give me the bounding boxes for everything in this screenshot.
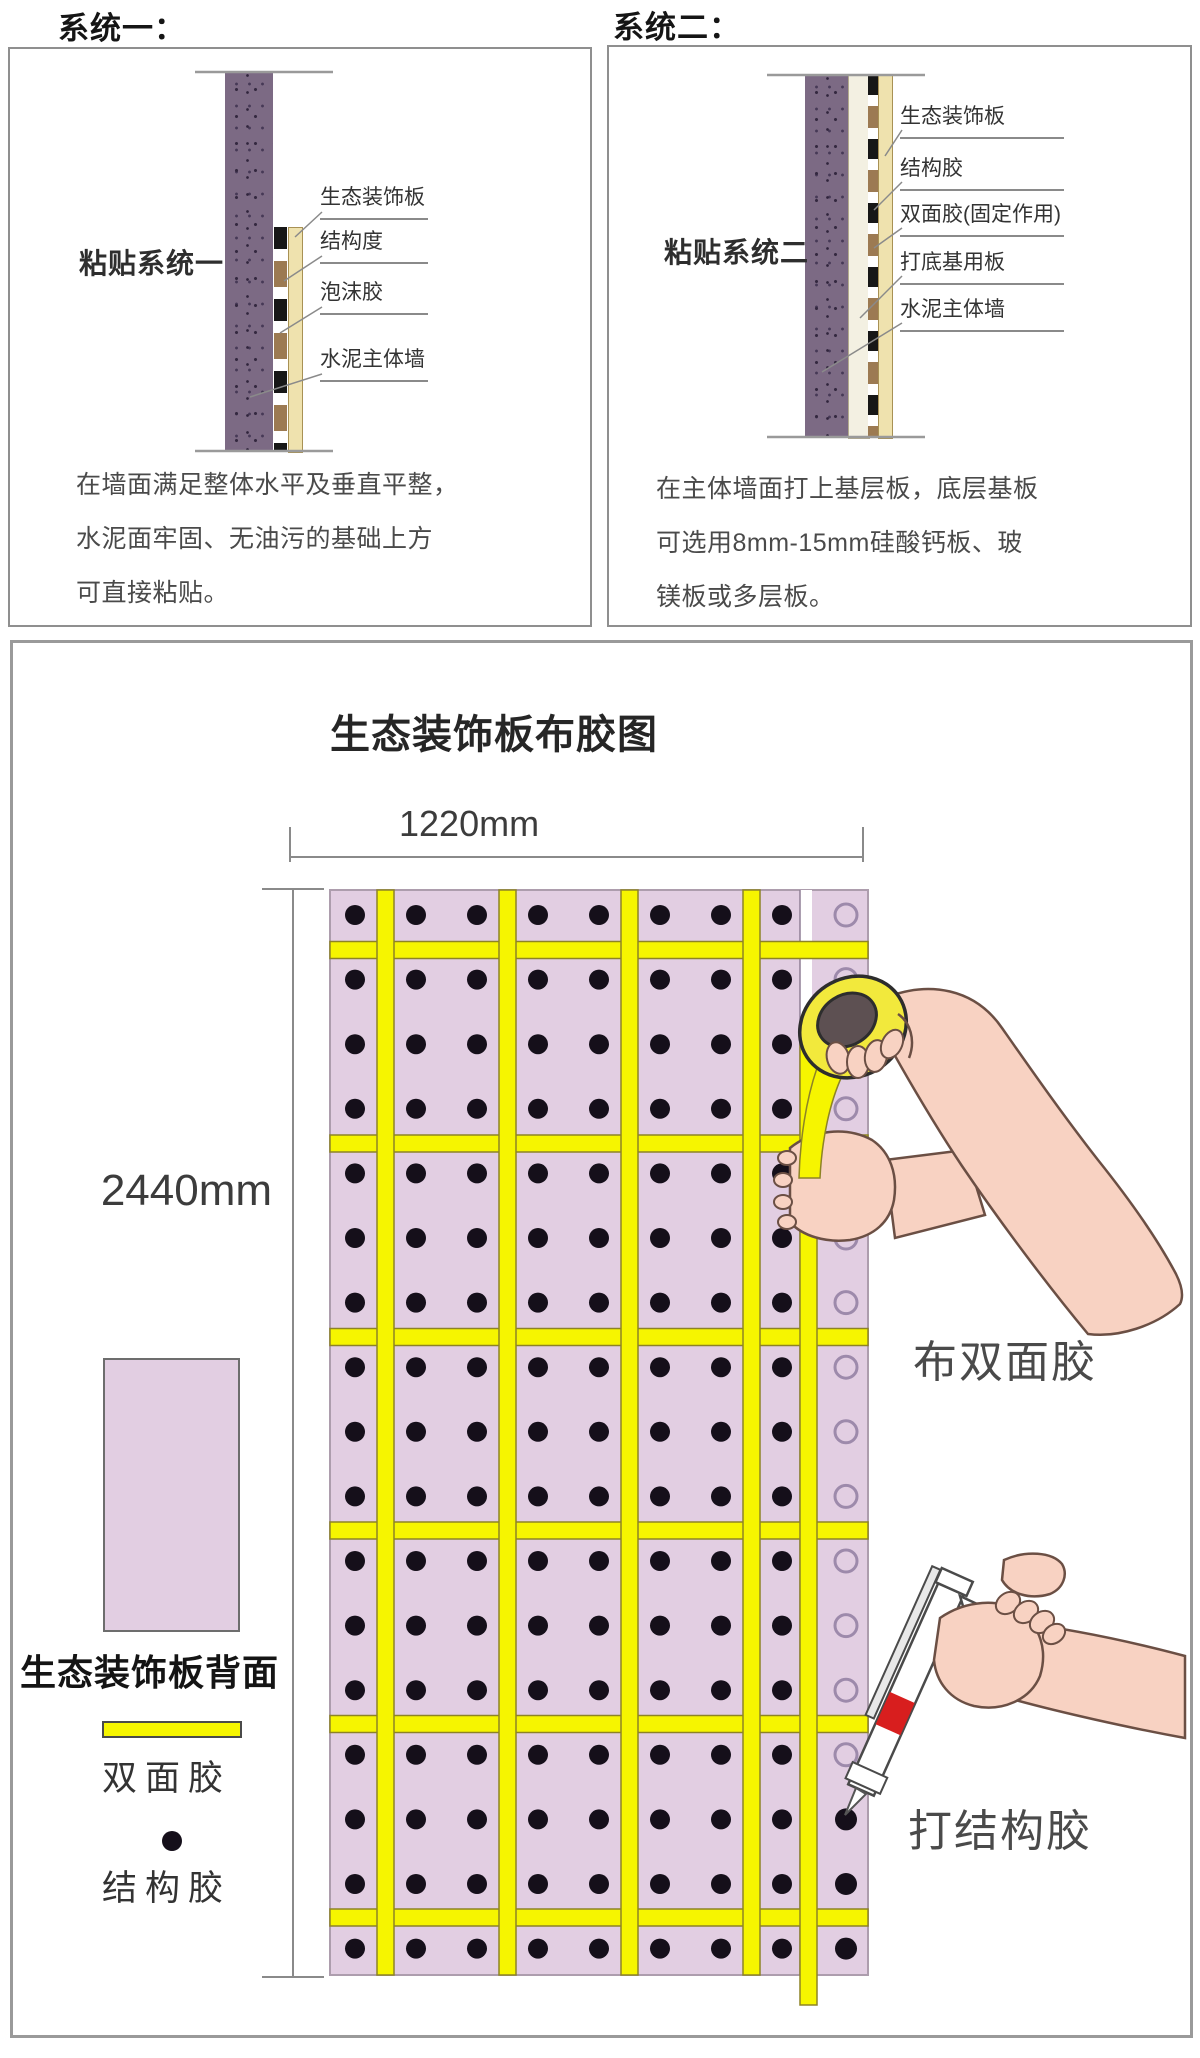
legend-panel-swatch (103, 1358, 240, 1632)
system2-base-board (848, 75, 870, 439)
system1-cement-wall (225, 72, 273, 451)
system2-title: 系统二： (613, 2, 741, 47)
system2-deco-board (878, 75, 893, 439)
system2-cement-wall (805, 75, 848, 437)
system1-layer-label-foam-glue: 泡沫胶 (320, 276, 428, 315)
system1-layer-label-cement-wall: 水泥主体墙 (320, 343, 428, 382)
system1-layer-label-structural: 结构度 (320, 225, 428, 264)
system1-description-line1: 在墙面满足整体水平及垂直平整， (76, 458, 459, 512)
system1-glue-column (274, 227, 287, 451)
legend-glue-dot-swatch (162, 1831, 182, 1851)
legend-glue-label: 结构胶 (102, 1860, 231, 1911)
system2-layer-label-double-tape: 双面胶(固定作用) (900, 198, 1064, 237)
tape-action-label: 布双面胶 (913, 1326, 1097, 1390)
system1-deco-board (288, 227, 303, 453)
panel-height-dimension: 2440mm (60, 1166, 272, 1216)
system1-description-line2: 水泥面牢固、无油污的基础上方 (76, 512, 459, 566)
system1-description: 在墙面满足整体水平及垂直平整， 水泥面牢固、无油污的基础上方 可直接粘贴。 (76, 458, 459, 620)
infographic-page: 系统一： 系统二： 粘贴系统一 粘贴系统二 生态装饰板 结构度 泡沫胶 水泥主体… (0, 0, 1200, 2058)
system2-layer-label-cement-wall: 水泥主体墙 (900, 293, 1064, 332)
system2-description-line1: 在主体墙面打上基层板，底层基板 (656, 462, 1039, 516)
system2-diagram-label: 粘贴系统二 (664, 231, 809, 271)
system2-description-line3: 镁板或多层板。 (656, 570, 1039, 624)
panel-width-dimension: 1220mm (399, 803, 539, 845)
system2-glue-column (868, 75, 878, 437)
system2-layer-label-deco-board: 生态装饰板 (900, 100, 1064, 139)
system2-layer-label-base-board: 打底基用板 (900, 246, 1064, 285)
glue-action-label: 打结构胶 (908, 1795, 1092, 1859)
system1-title: 系统一： (58, 3, 186, 48)
system1-description-line3: 可直接粘贴。 (76, 566, 459, 620)
legend-panel-label: 生态装饰板背面 (20, 1644, 279, 1696)
system2-layer-label-structural-glue: 结构胶 (900, 152, 1064, 191)
system1-layer-label-deco-board: 生态装饰板 (320, 181, 428, 220)
legend-tape-label: 双面胶 (102, 1750, 231, 1801)
glue-diagram-title: 生态装饰板布胶图 (330, 702, 658, 760)
legend-tape-swatch (102, 1721, 242, 1738)
system2-description-line2: 可选用8mm-15mm硅酸钙板、玻 (656, 516, 1039, 570)
system2-description: 在主体墙面打上基层板，底层基板 可选用8mm-15mm硅酸钙板、玻 镁板或多层板… (656, 462, 1039, 624)
system1-diagram-label: 粘贴系统一 (79, 242, 224, 282)
